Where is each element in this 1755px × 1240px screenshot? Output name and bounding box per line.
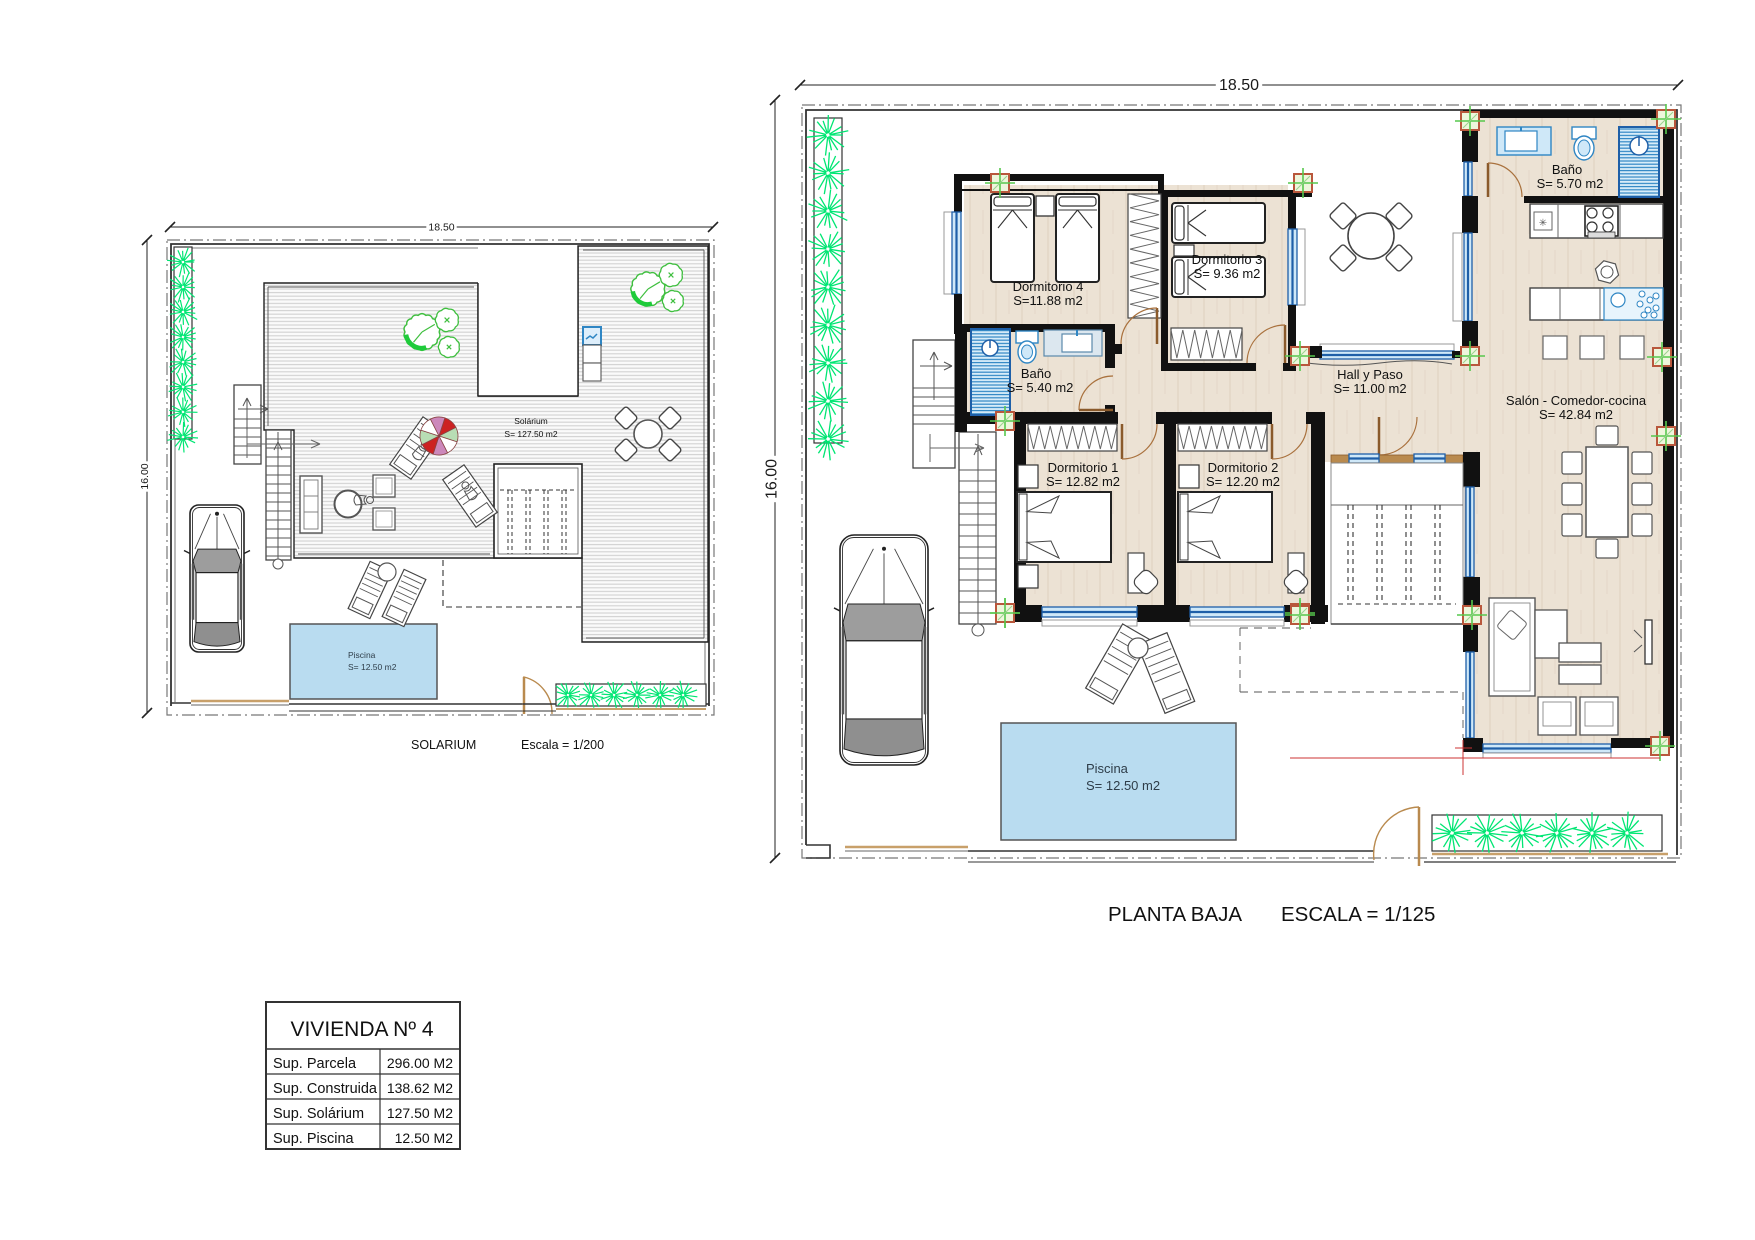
svg-text:Escala = 1/200: Escala = 1/200 bbox=[521, 738, 604, 752]
svg-text:S= 12.82 m2: S= 12.82 m2 bbox=[1046, 474, 1120, 489]
svg-text:16.00: 16.00 bbox=[764, 459, 781, 499]
svg-text:S= 5.70 m2: S= 5.70 m2 bbox=[1537, 176, 1604, 191]
svg-text:Dormitorio 4: Dormitorio 4 bbox=[1013, 279, 1084, 294]
svg-text:Dormitorio 1: Dormitorio 1 bbox=[1048, 460, 1119, 475]
svg-text:Solárium: Solárium bbox=[514, 416, 548, 426]
svg-text:138.62 M2: 138.62 M2 bbox=[387, 1080, 453, 1096]
svg-text:S= 127.50 m2: S= 127.50 m2 bbox=[504, 429, 557, 439]
svg-text:S=11.88 m2: S=11.88 m2 bbox=[1013, 293, 1083, 308]
svg-text:Hall y Paso: Hall y Paso bbox=[1337, 367, 1403, 382]
svg-text:Baño: Baño bbox=[1021, 366, 1051, 381]
svg-text:VIVIENDA Nº 4: VIVIENDA Nº 4 bbox=[290, 1018, 433, 1041]
svg-text:Sup. Parcela: Sup. Parcela bbox=[273, 1056, 357, 1072]
svg-text:18.50: 18.50 bbox=[1219, 77, 1259, 94]
svg-text:S= 11.00 m2: S= 11.00 m2 bbox=[1333, 381, 1406, 396]
svg-text:ESCALA = 1/125: ESCALA = 1/125 bbox=[1281, 903, 1435, 926]
svg-text:S= 12.50 m2: S= 12.50 m2 bbox=[348, 662, 397, 672]
svg-text:S= 42.84 m2: S= 42.84 m2 bbox=[1539, 407, 1613, 422]
svg-text:S= 12.50 m2: S= 12.50 m2 bbox=[1086, 778, 1160, 793]
svg-text:18.50: 18.50 bbox=[428, 221, 454, 233]
svg-text:Piscina: Piscina bbox=[348, 650, 376, 660]
svg-text:Sup. Solárium: Sup. Solárium bbox=[273, 1106, 364, 1122]
svg-text:Sup. Piscina: Sup. Piscina bbox=[273, 1131, 355, 1147]
svg-text:16.00: 16.00 bbox=[139, 463, 151, 489]
svg-text:S= 5.40 m2: S= 5.40 m2 bbox=[1007, 380, 1074, 395]
svg-text:Dormitorio 2: Dormitorio 2 bbox=[1208, 460, 1279, 475]
svg-text:Sup. Construida: Sup. Construida bbox=[273, 1081, 378, 1097]
svg-text:S= 9.36 m2: S= 9.36 m2 bbox=[1194, 266, 1261, 281]
svg-text:✳: ✳ bbox=[1539, 218, 1547, 229]
svg-text:Salón - Comedor-cocina: Salón - Comedor-cocina bbox=[1506, 393, 1647, 408]
svg-text:296.00 M2: 296.00 M2 bbox=[387, 1055, 453, 1071]
svg-text:12.50 M2: 12.50 M2 bbox=[395, 1130, 454, 1146]
svg-text:Piscina: Piscina bbox=[1086, 761, 1129, 776]
svg-text:SOLARIUM: SOLARIUM bbox=[411, 738, 476, 752]
svg-text:127.50 M2: 127.50 M2 bbox=[387, 1105, 453, 1121]
svg-text:S= 12.20 m2: S= 12.20 m2 bbox=[1206, 474, 1280, 489]
svg-text:Baño: Baño bbox=[1552, 162, 1582, 177]
svg-text:Dormitorio 3: Dormitorio 3 bbox=[1192, 252, 1263, 267]
svg-text:PLANTA BAJA: PLANTA BAJA bbox=[1108, 903, 1242, 926]
